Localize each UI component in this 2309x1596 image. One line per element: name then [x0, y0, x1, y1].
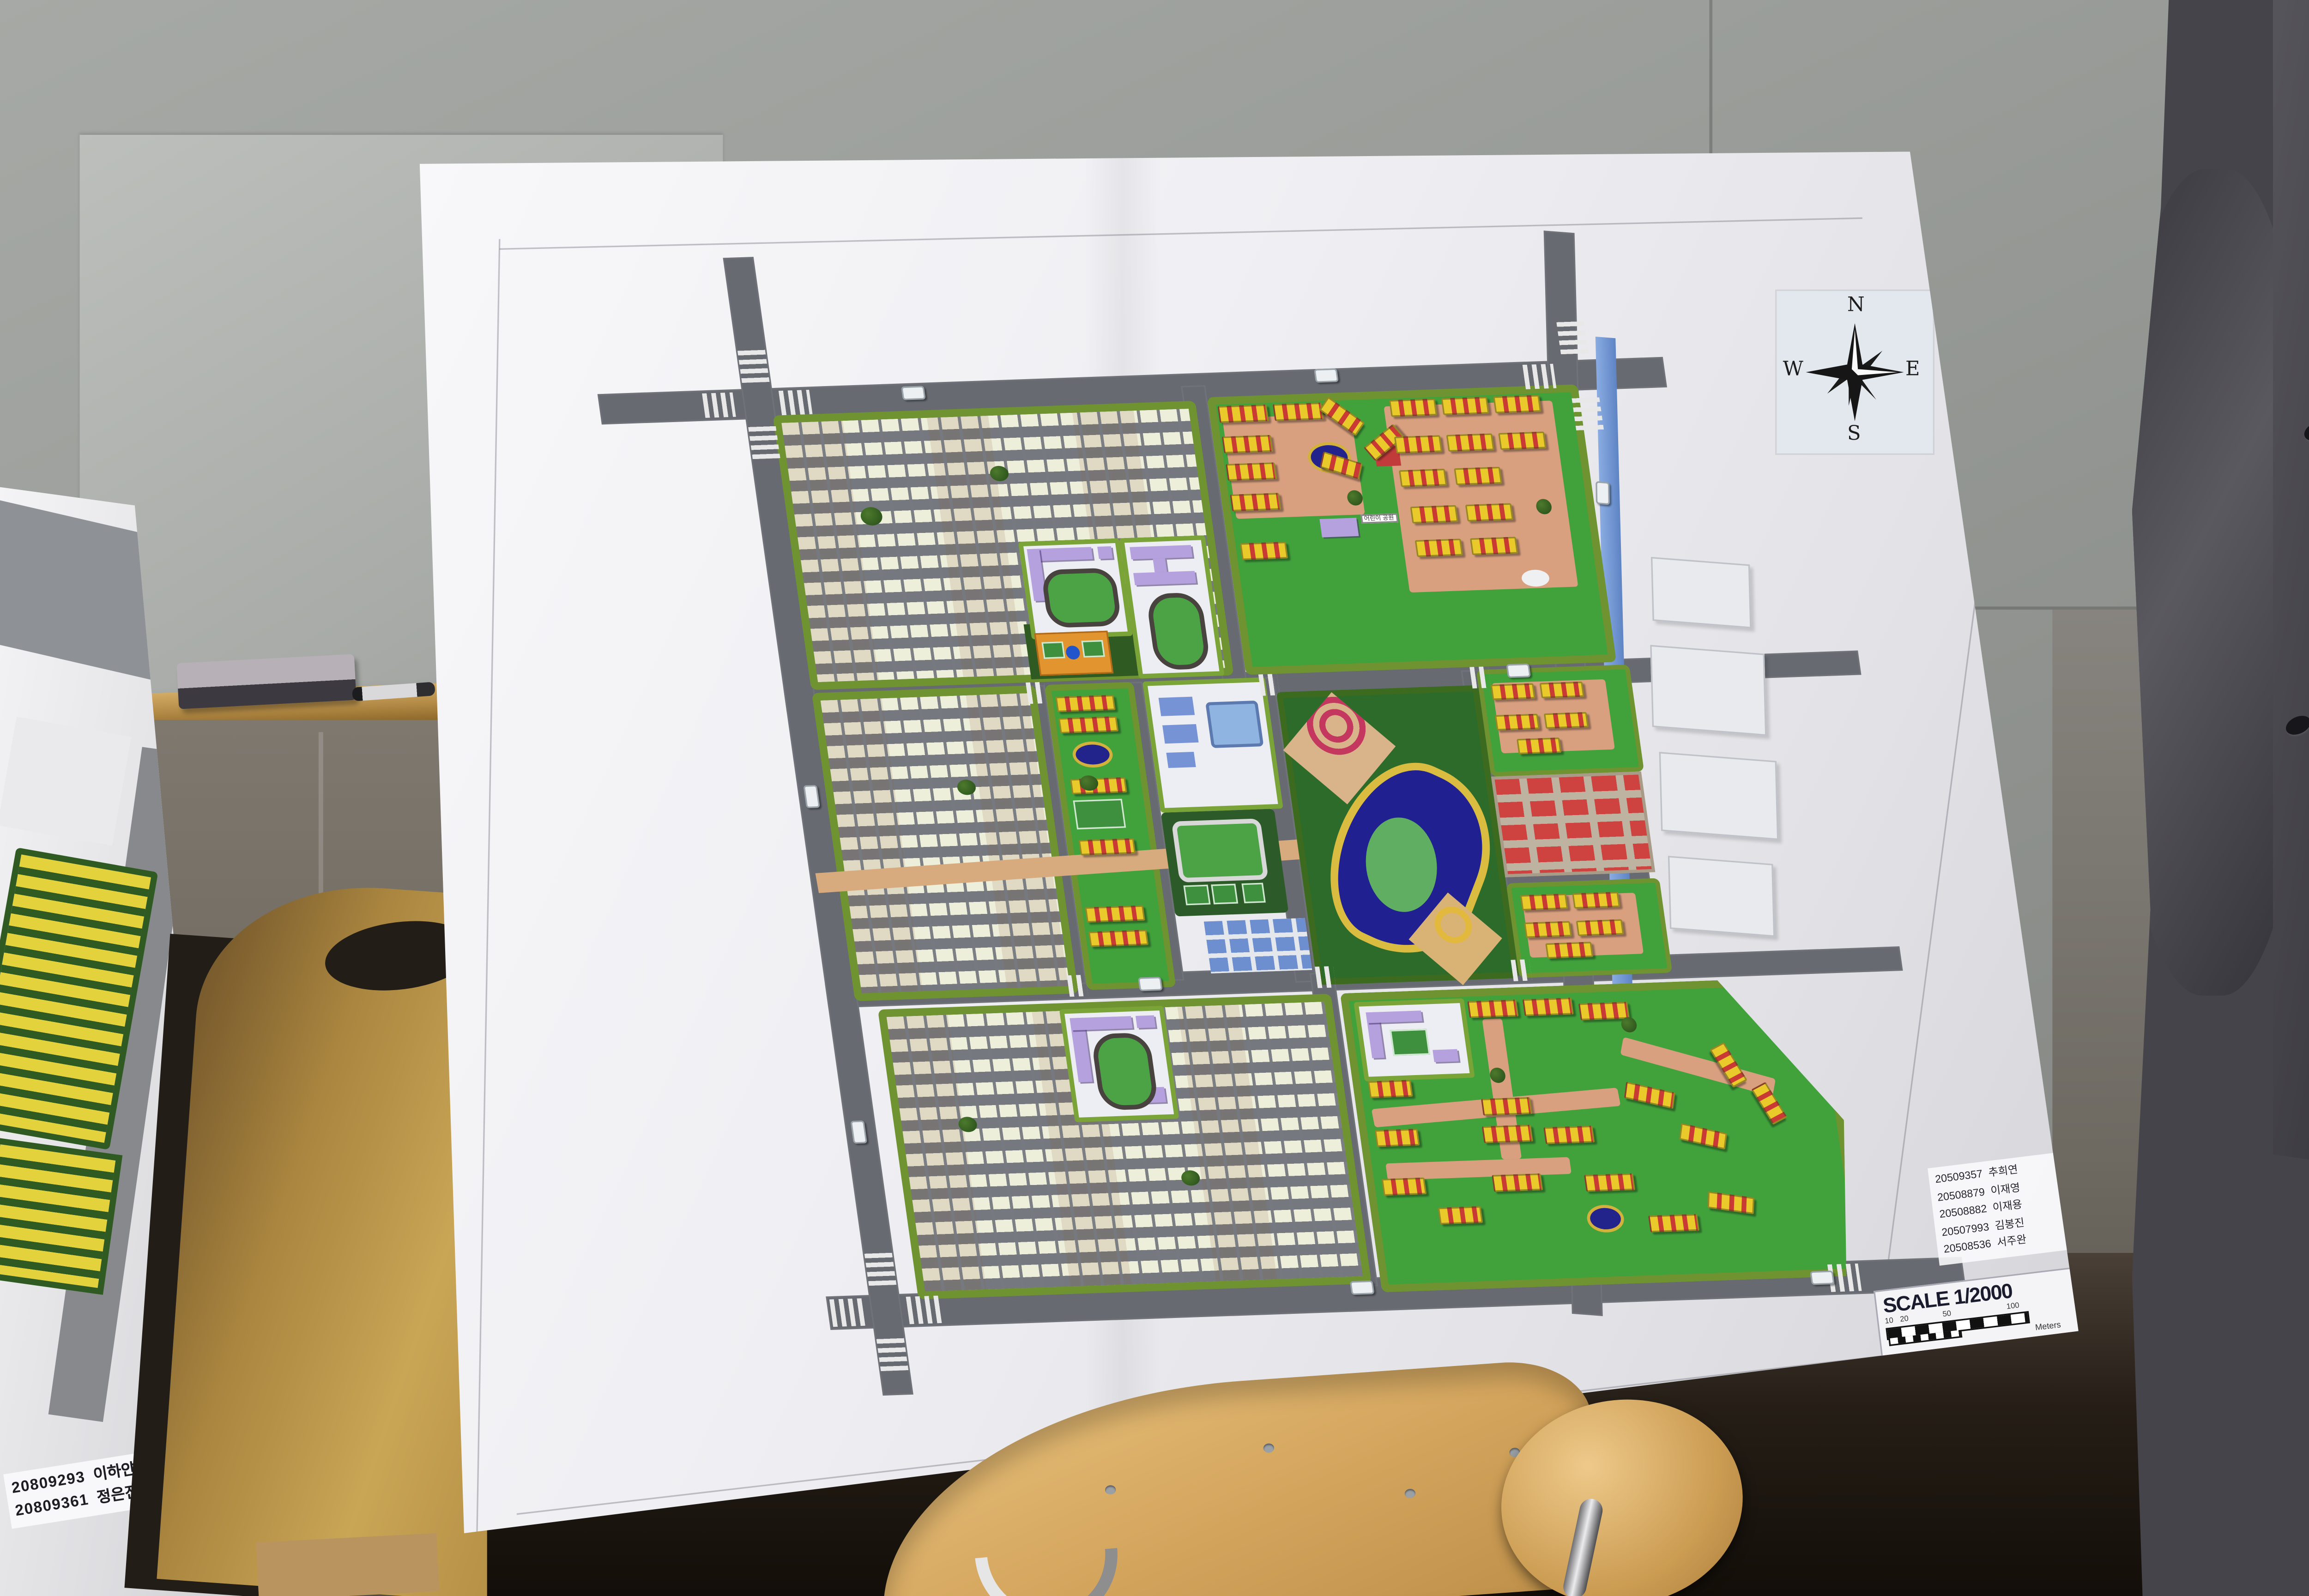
apartment-building — [1389, 399, 1438, 417]
playground-pond — [1065, 646, 1081, 660]
crosswalk — [779, 390, 813, 415]
housing-block-w — [812, 685, 1079, 1001]
soccer-field — [1040, 568, 1122, 628]
apartment-building — [1055, 695, 1116, 712]
compass-south-label: S — [1847, 423, 1861, 446]
courtyard — [1384, 400, 1578, 592]
site-plan-map: 어린이 공원 — [662, 290, 1960, 1398]
basketball-court — [1183, 885, 1210, 906]
running-track — [1145, 592, 1211, 670]
scale-tick: 50 — [1942, 1310, 1952, 1320]
school-building — [1097, 546, 1113, 559]
basketball-court — [1081, 640, 1105, 658]
car — [1314, 368, 1339, 382]
apartment-building — [1492, 1173, 1543, 1192]
crosswalk — [864, 1251, 896, 1286]
children-park-sign: 어린이 공원 — [1360, 514, 1398, 525]
building — [1162, 724, 1198, 744]
apartment-building — [1382, 1178, 1427, 1196]
apartment-building — [1520, 894, 1568, 910]
school-site — [1354, 998, 1475, 1082]
car — [1596, 481, 1610, 505]
school-building — [1130, 545, 1192, 559]
apartment-building — [1222, 435, 1273, 453]
apartment-building — [1578, 1002, 1630, 1020]
car — [1506, 664, 1531, 678]
floor-patch — [256, 1533, 439, 1596]
scale-tick: 10 — [1885, 1317, 1894, 1327]
apartment-building — [1517, 738, 1561, 754]
crosswalk — [702, 393, 736, 418]
apartment-building — [1543, 1125, 1595, 1144]
crosswalk — [1067, 975, 1088, 997]
apartment-building — [1375, 1129, 1420, 1147]
board-eraser — [176, 654, 356, 709]
apartment-building — [1240, 542, 1288, 560]
crosswalk — [1258, 674, 1280, 696]
apartment-building — [1523, 997, 1574, 1016]
building — [1166, 752, 1196, 768]
sports-court — [1390, 1029, 1430, 1056]
photo-viewport: 20809293 이하얀20809361 정은진 N E S W — [0, 0, 2309, 1596]
apartment-building — [1438, 1206, 1483, 1225]
crosswalk — [737, 348, 770, 383]
apartment-building — [1648, 1214, 1699, 1233]
apartment-building — [1273, 403, 1324, 421]
school-building — [1366, 1010, 1423, 1023]
pond-island — [1366, 814, 1437, 916]
apartment-building — [1576, 919, 1624, 936]
apartment-building — [1410, 505, 1458, 524]
school-site — [1018, 538, 1133, 640]
commercial-center — [1204, 918, 1312, 973]
soccer-field — [1171, 818, 1269, 883]
apartment-building — [1070, 777, 1127, 794]
crosswalk — [1026, 682, 1047, 704]
crosswalk — [1511, 959, 1532, 981]
red-rowhouse-grid — [1491, 771, 1655, 877]
central-park — [1276, 685, 1519, 985]
car — [901, 386, 926, 400]
apartment-building — [1584, 1173, 1635, 1192]
apartment-building — [1470, 537, 1518, 555]
school-building — [1433, 1049, 1459, 1062]
basketball-court — [1041, 641, 1065, 659]
apartment-building — [1415, 538, 1463, 557]
car — [1350, 1281, 1375, 1295]
apartment-building — [1454, 467, 1502, 485]
apartment-building — [1498, 431, 1547, 450]
left-poster-housing — [0, 1137, 122, 1295]
apartment-building — [1491, 683, 1535, 700]
frame-line — [500, 218, 1862, 250]
apartment-building — [1572, 892, 1620, 908]
classroom-scene: 20809293 이하얀20809361 정은진 N E S W — [0, 0, 2309, 1596]
apartment-building — [1394, 435, 1443, 453]
apartment-building — [1230, 493, 1281, 511]
car — [1810, 1270, 1835, 1285]
compass-north-label: N — [1847, 294, 1865, 317]
crosswalk — [906, 1295, 943, 1324]
apartment-building — [1540, 682, 1584, 698]
playground — [1034, 631, 1113, 676]
crosswalk — [829, 1298, 867, 1327]
apartment-building — [1441, 397, 1489, 415]
frame-line — [475, 239, 500, 1587]
crosswalk — [1523, 364, 1557, 389]
car — [1138, 977, 1163, 991]
crosswalk — [1315, 966, 1336, 988]
school-site — [1059, 1006, 1179, 1122]
apartment-building — [1368, 1080, 1413, 1098]
scale-tick: 100 — [2006, 1301, 2020, 1312]
apartment-building — [1467, 999, 1518, 1018]
crosswalk — [1469, 666, 1491, 689]
apartment-building — [1524, 921, 1572, 937]
school-building — [1133, 571, 1196, 585]
civic-site — [1142, 677, 1283, 813]
apartment-building — [1465, 503, 1514, 522]
school-building — [1153, 558, 1167, 573]
scale-bar-fine — [1888, 1330, 1962, 1346]
compass-east-label: E — [1905, 358, 1920, 381]
building — [1650, 645, 1766, 736]
scale-unit: Meters — [2035, 1321, 2061, 1333]
scale-tick: 20 — [1899, 1315, 1909, 1325]
apartment-building — [1058, 716, 1119, 733]
coat-lapel — [2273, 0, 2309, 1174]
apartment-building — [1493, 395, 1541, 413]
community-building — [1319, 518, 1359, 537]
apartment-building — [1545, 942, 1593, 958]
apartment-building — [1446, 433, 1494, 452]
left-poster-plot — [0, 717, 131, 846]
screw — [1404, 1488, 1416, 1498]
apartment-building — [1495, 714, 1540, 731]
basketball-court — [1211, 884, 1238, 905]
apartment-building — [1544, 712, 1589, 729]
crosswalk — [876, 1336, 908, 1371]
crosswalk — [748, 425, 780, 459]
apartment-building — [1217, 405, 1269, 423]
screw — [1105, 1485, 1116, 1494]
hall-building — [1205, 701, 1264, 748]
tennis-court — [1073, 799, 1126, 829]
crosswalk — [1572, 396, 1604, 430]
site-plan-poster: N E S W — [411, 147, 2098, 1547]
building — [1668, 856, 1775, 937]
building — [1651, 557, 1752, 629]
apartment-building — [1481, 1097, 1532, 1116]
running-track — [1090, 1032, 1159, 1111]
person-trench-coat — [2132, 0, 2309, 1596]
screw — [1263, 1443, 1275, 1453]
apartment-building — [1088, 930, 1149, 947]
school-building — [1070, 1016, 1132, 1030]
apartment-building — [1482, 1124, 1533, 1143]
building — [1659, 752, 1779, 840]
school-building — [1136, 1015, 1155, 1028]
basketball-court — [1241, 883, 1265, 903]
sports-zone — [1161, 809, 1289, 916]
apartment-building — [1085, 905, 1145, 922]
building — [1159, 697, 1195, 716]
apartment-building — [1078, 838, 1136, 855]
crosswalk — [1556, 320, 1589, 354]
apartment-building — [1399, 469, 1447, 487]
apartment-building — [1226, 462, 1277, 481]
